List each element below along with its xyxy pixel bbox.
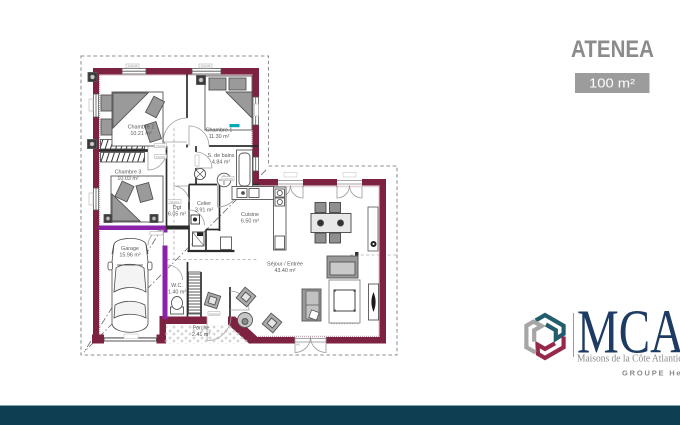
svg-text:70x204: 70x204 [169, 200, 179, 204]
svg-text:2.41 m²: 2.41 m² [192, 332, 210, 338]
svg-text:Chambre 1: Chambre 1 [206, 128, 233, 134]
svg-text:10.03 m²: 10.03 m² [117, 176, 138, 182]
svg-text:10.21 m²: 10.21 m² [130, 131, 151, 137]
svg-text:HE: HE [296, 343, 300, 347]
svg-text:6.05 m²: 6.05 m² [168, 212, 186, 218]
svg-text:Maisons de la Côte Atlantique: Maisons de la Côte Atlantique [577, 354, 680, 365]
svg-text:W.C.: W.C. [171, 283, 183, 289]
svg-text:43.40 m²: 43.40 m² [274, 268, 295, 274]
svg-text:120x95: 120x95 [223, 177, 233, 181]
svg-text:120x95: 120x95 [201, 64, 211, 68]
svg-text:Dgt: Dgt [173, 205, 182, 211]
svg-text:Celier: Celier [197, 201, 211, 207]
svg-text:ATENEA: ATENEA [571, 36, 654, 63]
svg-text:Séjour / Entrée: Séjour / Entrée [267, 262, 303, 268]
svg-text:Porche: Porche [192, 326, 209, 332]
svg-text:S. de bains: S. de bains [208, 153, 235, 159]
svg-text:6.50 m²: 6.50 m² [241, 219, 259, 225]
svg-text:Cuisine: Cuisine [241, 212, 259, 218]
svg-text:100 m²: 100 m² [589, 76, 636, 91]
svg-text:GROUPE HexaO: GROUPE HexaO [622, 369, 680, 378]
svg-text:Garage: Garage [121, 246, 139, 252]
svg-text:73x204: 73x204 [156, 155, 166, 159]
svg-text:120x95: 120x95 [128, 64, 138, 68]
svg-text:Chambre 3: Chambre 3 [115, 170, 142, 176]
svg-text:Chambre 2: Chambre 2 [128, 125, 155, 131]
svg-text:73x204: 73x204 [156, 144, 166, 148]
svg-text:11.30 m²: 11.30 m² [209, 134, 230, 140]
svg-text:90x204: 90x204 [209, 312, 219, 316]
svg-text:15.96 m²: 15.96 m² [119, 253, 140, 259]
svg-text:3.91 m²: 3.91 m² [195, 208, 213, 214]
svg-text:1.40 m²: 1.40 m² [168, 290, 186, 296]
svg-text:4.84 m²: 4.84 m² [212, 160, 230, 166]
